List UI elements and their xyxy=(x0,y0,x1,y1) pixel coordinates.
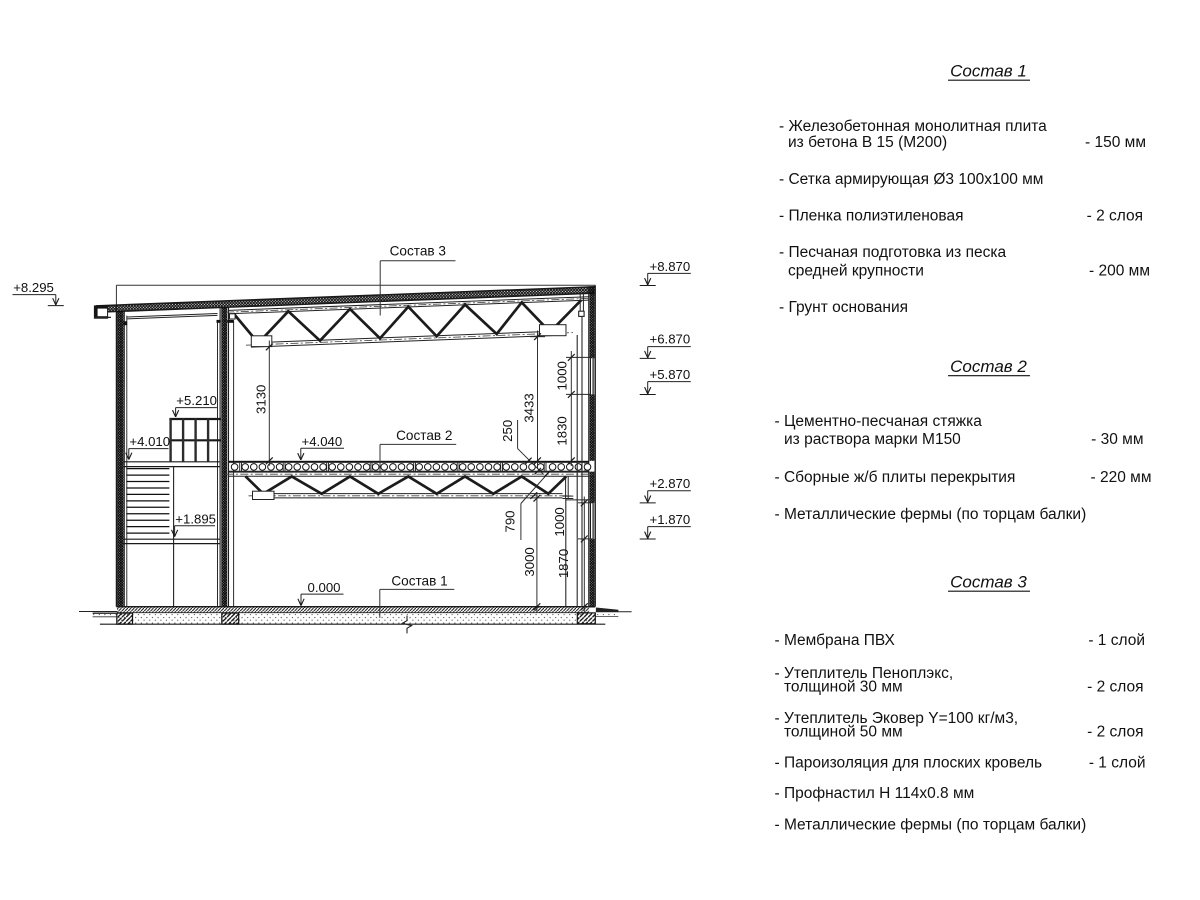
svg-text:+1.870: +1.870 xyxy=(650,512,691,527)
svg-text:+8.295: +8.295 xyxy=(13,280,54,295)
svg-text:- 2 слоя: - 2 слоя xyxy=(1087,724,1143,741)
svg-text:+8.870: +8.870 xyxy=(650,259,691,274)
svg-text:средней крупности: средней крупности xyxy=(788,263,924,280)
svg-text:Состав 3: Состав 3 xyxy=(950,573,1027,592)
svg-text:Состав 1: Состав 1 xyxy=(391,573,447,588)
svg-text:+5.870: +5.870 xyxy=(650,367,691,382)
svg-text:0.000: 0.000 xyxy=(308,580,341,595)
svg-text:+5.210: +5.210 xyxy=(176,393,217,408)
svg-text:3433: 3433 xyxy=(521,393,536,422)
svg-text:3000: 3000 xyxy=(522,547,537,576)
svg-text:- Мембрана ПВХ: - Мембрана ПВХ xyxy=(775,632,896,649)
svg-text:- Железобетонная монолитная п: - Железобетонная монолитная плита xyxy=(779,118,1047,135)
svg-text:Состав 1: Состав 1 xyxy=(950,62,1027,81)
svg-text:+4.010: +4.010 xyxy=(129,434,170,449)
svg-text:Состав 2: Состав 2 xyxy=(396,428,452,443)
svg-text:3130: 3130 xyxy=(253,385,268,414)
svg-text:- 1 слой: - 1 слой xyxy=(1089,755,1146,772)
svg-text:Состав 3: Состав 3 xyxy=(390,244,446,259)
svg-text:1000: 1000 xyxy=(552,507,567,536)
svg-text:- Песчаная подготовка из песка: - Песчаная подготовка из песка xyxy=(779,244,1006,261)
svg-text:1830: 1830 xyxy=(554,416,569,445)
svg-text:- 30 мм: - 30 мм xyxy=(1091,431,1143,448)
svg-text:1000: 1000 xyxy=(554,361,569,390)
svg-text:- 2 слоя: - 2 слоя xyxy=(1087,679,1143,696)
svg-text:- Металлические фермы (по торц: - Металлические фермы (по торцам балки) xyxy=(775,817,1087,834)
svg-text:- 1 слой: - 1 слой xyxy=(1088,632,1145,649)
svg-text:+2.870: +2.870 xyxy=(650,476,691,491)
svg-text:- 150 мм: - 150 мм xyxy=(1085,134,1146,151)
svg-text:- Цементно-песчаная стяжка: - Цементно-песчаная стяжка xyxy=(775,413,983,430)
svg-text:250: 250 xyxy=(500,420,515,442)
svg-text:- Металлические фермы (по торц: - Металлические фермы (по торцам балки) xyxy=(775,506,1087,523)
svg-text:- 220 мм: - 220 мм xyxy=(1091,469,1152,486)
svg-text:- Профнастил Н 114х0.8 мм: - Профнастил Н 114х0.8 мм xyxy=(775,785,975,802)
svg-text:из раствора марки М150: из раствора марки М150 xyxy=(784,431,961,448)
svg-text:- Пароизоляция для плоских кро: - Пароизоляция для плоских кровель xyxy=(775,755,1043,772)
svg-text:толщиной 30 мм: толщиной 30 мм xyxy=(784,679,903,696)
svg-text:1870: 1870 xyxy=(556,549,571,578)
svg-text:790: 790 xyxy=(503,510,518,532)
svg-text:- Грунт основания: - Грунт основания xyxy=(779,299,908,316)
svg-text:- Пленка полиэтиленовая: - Пленка полиэтиленовая xyxy=(779,208,964,225)
svg-text:Состав 2: Состав 2 xyxy=(950,357,1027,376)
svg-text:+6.870: +6.870 xyxy=(650,332,691,347)
svg-text:- Сборные ж/б плиты перекрытия: - Сборные ж/б плиты перекрытия xyxy=(775,469,1016,486)
svg-text:- 2 слоя: - 2 слоя xyxy=(1087,208,1143,225)
svg-text:+4.040: +4.040 xyxy=(302,434,343,449)
svg-text:- Сетка армирующая Ø3 100х100: - Сетка армирующая Ø3 100х100 мм xyxy=(779,171,1043,188)
svg-text:- 200 мм: - 200 мм xyxy=(1089,263,1150,280)
svg-text:из бетона В 15 (М200): из бетона В 15 (М200) xyxy=(788,134,947,151)
svg-text:+1.895: +1.895 xyxy=(175,511,216,526)
svg-text:толщиной 50 мм: толщиной 50 мм xyxy=(784,724,903,741)
